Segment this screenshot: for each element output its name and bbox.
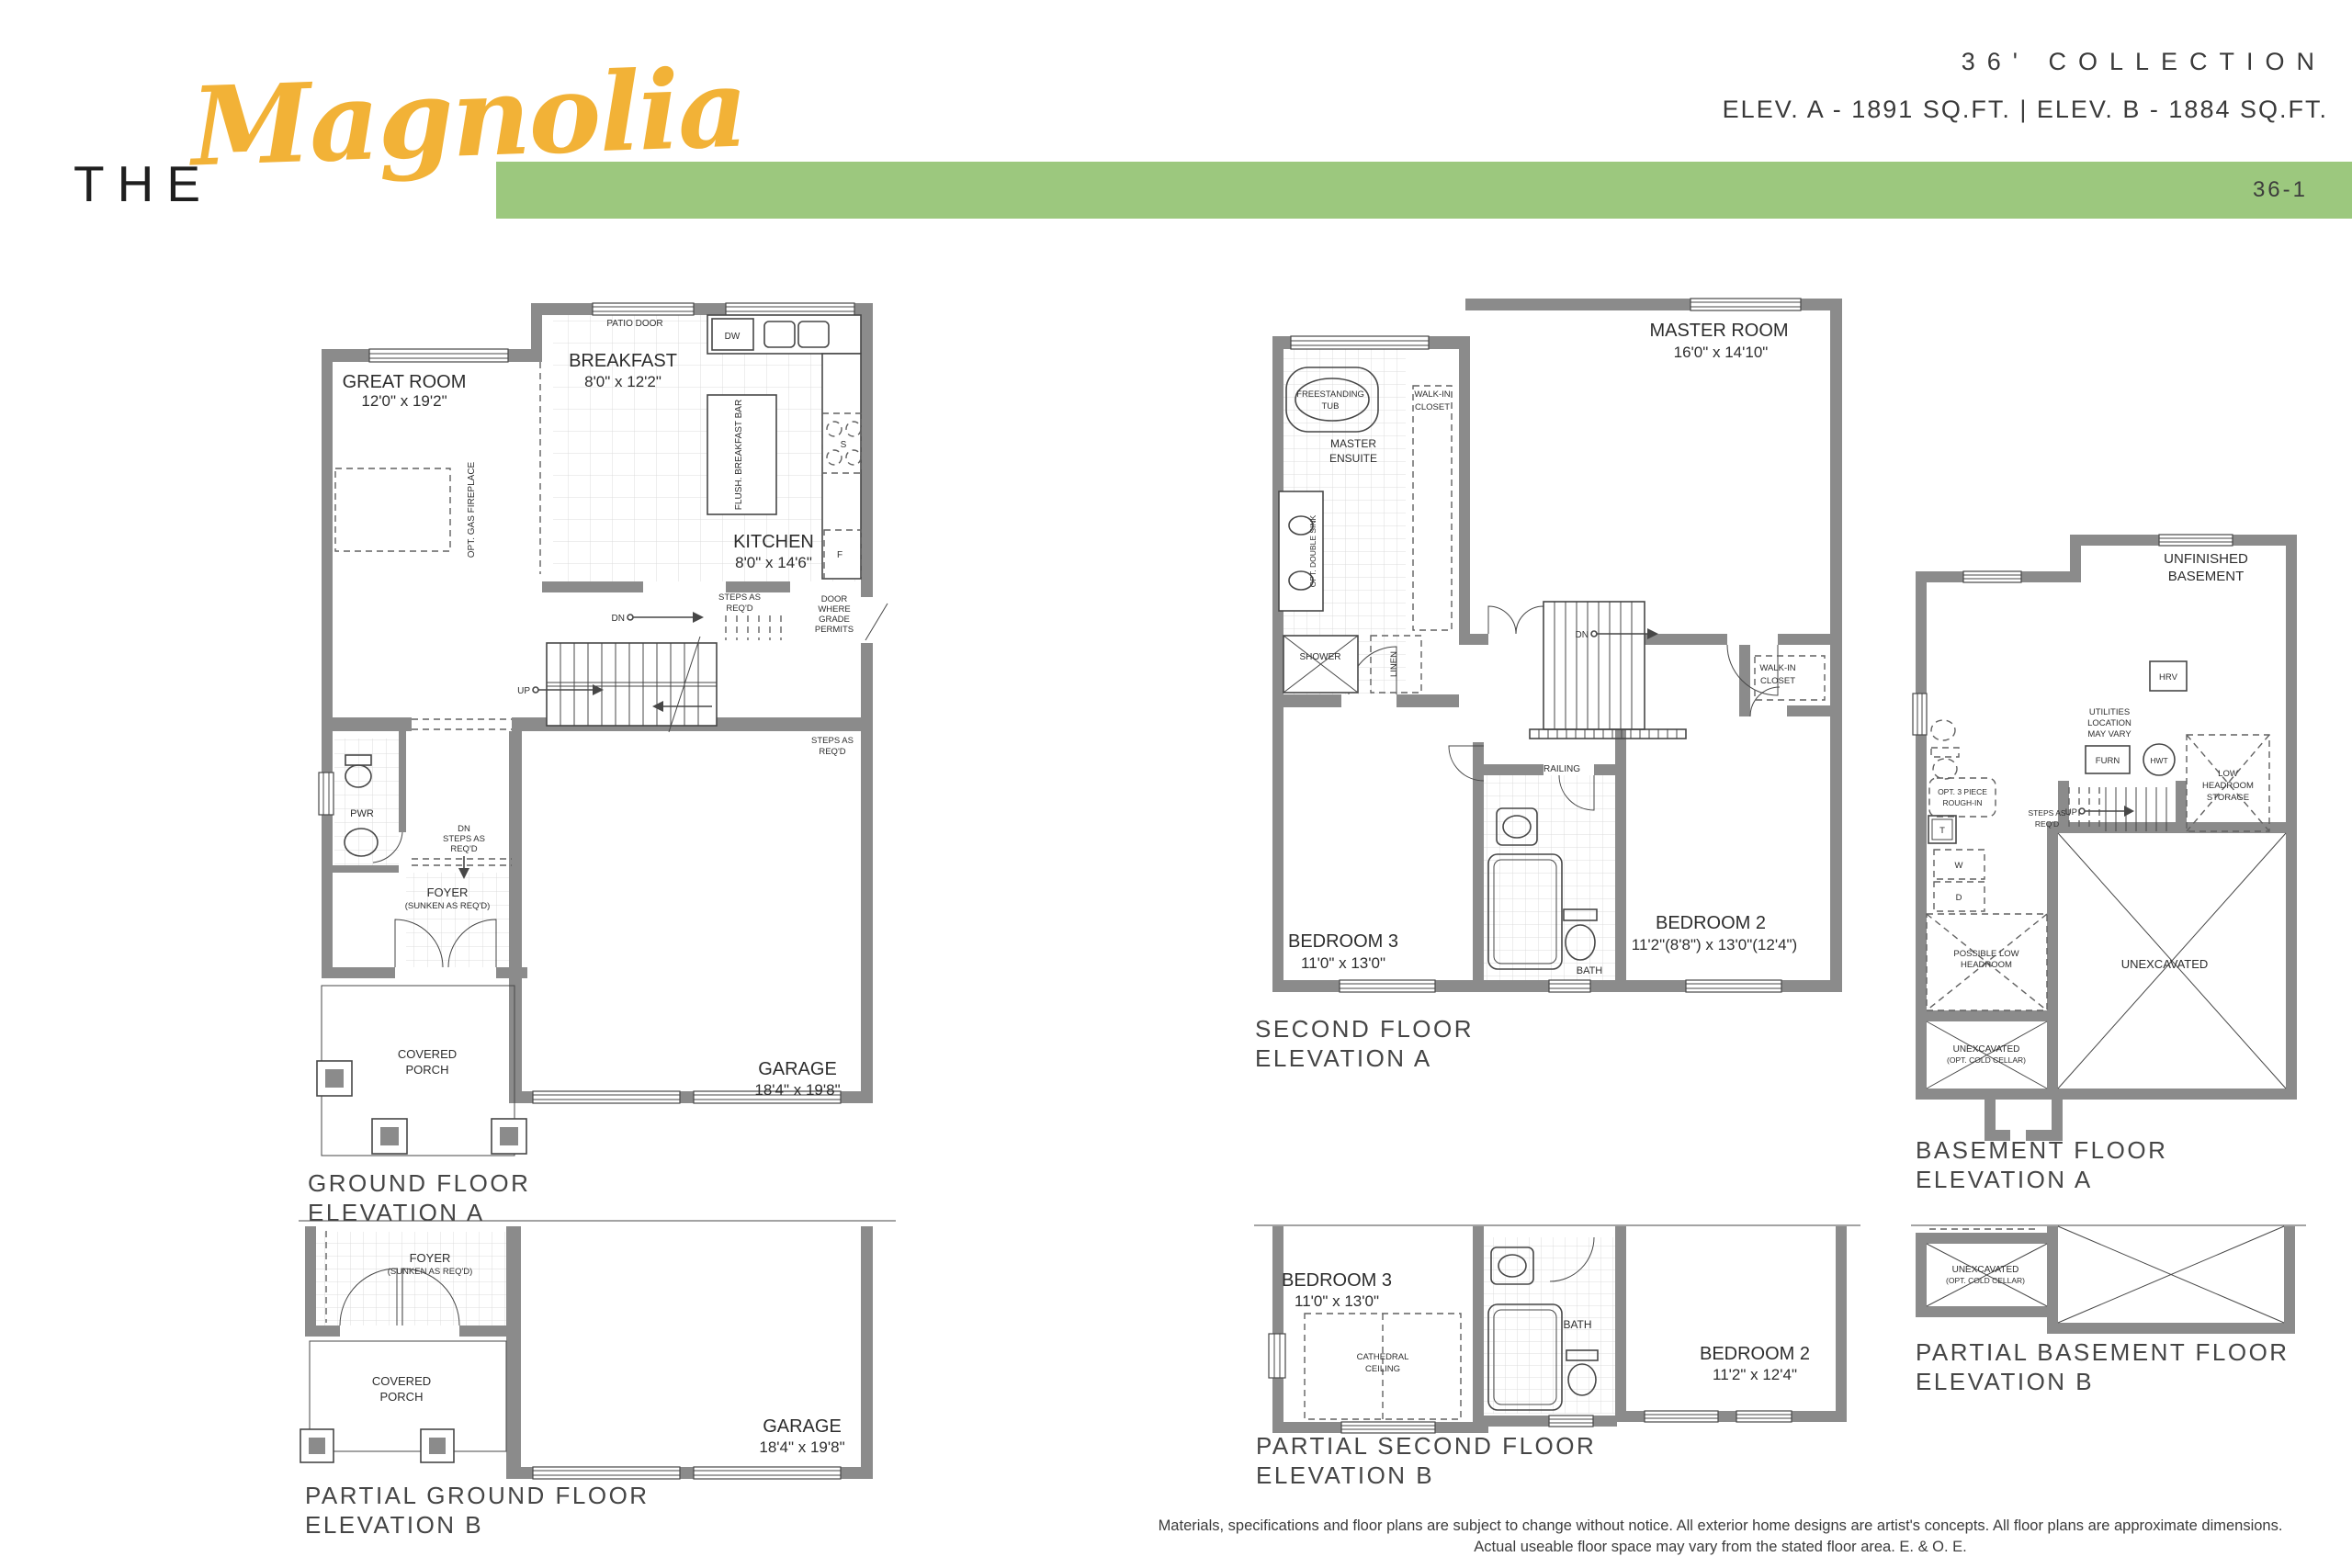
- walk-in-closet-label: CLOSET: [1415, 402, 1450, 412]
- dryer-label: D: [1956, 893, 1962, 903]
- plan-title-line: ELEVATION A: [1255, 1043, 1474, 1073]
- opt-double-sink-label: OPT. DOUBLE SINK: [1308, 514, 1317, 587]
- collection-label: 36' COLLECTION: [1962, 48, 2326, 76]
- plan-title-line: ELEVATION B: [1256, 1461, 1596, 1490]
- ground-a-title: GROUND FLOOR ELEVATION A: [308, 1168, 530, 1227]
- steps-as-reqd-label: REQ'D: [819, 747, 845, 757]
- possible-low-headroom-label: POSSIBLE LOW: [1953, 949, 2018, 959]
- ground-b-title: PARTIAL GROUND FLOOR ELEVATION B: [305, 1481, 650, 1540]
- cold-cellar-label: UNEXCAVATED: [1953, 1044, 2020, 1055]
- low-headroom-storage-label: LOW: [2218, 769, 2238, 779]
- freestanding-tub-label: FREESTANDING: [1296, 389, 1364, 400]
- foyer-sub-label: (SUNKEN AS REQ'D): [388, 1267, 473, 1277]
- utilities-note: UTILITIES: [2089, 707, 2130, 717]
- up-label: UP: [517, 686, 530, 696]
- cold-cellar-sub-label: (OPT. COLD CELLAR): [1947, 1055, 2026, 1065]
- laundry-tub-label: T: [1939, 826, 1945, 836]
- bedroom2-dims: 11'2" x 12'4": [1713, 1366, 1797, 1383]
- bedroom3-dims: 11'0" x 13'0": [1295, 1292, 1379, 1310]
- low-headroom-storage-label: STORAGE: [2207, 793, 2249, 803]
- floorplan-sheet: THE Magnolia 36' COLLECTION ELEV. A - 18…: [0, 0, 2352, 1568]
- hrv-label: HRV: [2159, 672, 2178, 682]
- disclaimer-line: Actual useable floor space may vary from…: [1102, 1537, 2338, 1558]
- opt-gas-fireplace-label: OPT. GAS FIREPLACE: [467, 461, 477, 558]
- steps-as-reqd-label: STEPS AS: [718, 592, 761, 603]
- green-accent-bar: 36-1: [496, 162, 2352, 219]
- bedroom3-label: BEDROOM 3: [1282, 1270, 1392, 1291]
- hot-water-tank-label: HWT: [2150, 756, 2167, 765]
- great-room-dims: 12'0" x 19'2": [361, 392, 447, 410]
- covered-porch-label: COVERED: [372, 1374, 431, 1388]
- fridge-label: F: [837, 550, 842, 560]
- bath-label: BATH: [1577, 965, 1603, 976]
- breakfast-bar-label: FLUSH. BREAKFAST BAR: [734, 400, 744, 510]
- utilities-note: MAY VARY: [2087, 729, 2131, 739]
- walk-in-closet-label: WALK-IN: [1414, 389, 1450, 400]
- bedroom3-dims: 11'0" x 13'0": [1301, 954, 1385, 972]
- kitchen-dims: 8'0" x 14'6": [735, 554, 812, 571]
- dn-steps-label: STEPS AS: [443, 834, 485, 844]
- shower-label: SHOWER: [1300, 652, 1341, 662]
- rough-in-label: ROUGH-IN: [1943, 798, 1983, 807]
- room-labels: UNFINISHED BASEMENT UTILITIES LOCATION M…: [1938, 551, 2254, 1065]
- freestanding-tub-label: TUB: [1322, 401, 1340, 412]
- stove-label: S: [841, 440, 847, 450]
- ground-floor-a-plan: GREAT ROOM 12'0" x 19'2" BREAKFAST 8'0" …: [303, 299, 891, 1208]
- covered-porch-label: PORCH: [380, 1390, 424, 1404]
- patio-door-label: PATIO DOOR: [606, 319, 662, 329]
- railing-label: RAILING: [1543, 764, 1580, 774]
- covered-porch-label: PORCH: [406, 1063, 449, 1077]
- elevation-square-footage: ELEV. A - 1891 SQ.FT. | ELEV. B - 1884 S…: [1723, 96, 2328, 124]
- plan-title-line: SECOND FLOOR: [1255, 1014, 1474, 1043]
- floor-tile-grid: [316, 1232, 506, 1325]
- dn-label: DN: [612, 614, 625, 624]
- sheet-code: 36-1: [2253, 162, 2308, 219]
- second-b-title: PARTIAL SECOND FLOOR ELEVATION B: [1256, 1431, 1596, 1490]
- second-a-title: SECOND FLOOR ELEVATION A: [1255, 1014, 1474, 1073]
- basement-a-title: BASEMENT FLOOR ELEVATION A: [1916, 1135, 2167, 1194]
- cold-cellar-sub-label: (OPT. COLD CELLAR): [1946, 1276, 2025, 1285]
- dn-label: DN: [1576, 630, 1589, 640]
- walk-in-closet-label: WALK-IN: [1759, 663, 1795, 673]
- door-grade-label: DOOR: [821, 594, 848, 604]
- plan-title-line: PARTIAL SECOND FLOOR: [1256, 1431, 1596, 1461]
- master-room-label: MASTER ROOM: [1649, 321, 1788, 341]
- steps-as-reqd-label: STEPS AS: [2028, 808, 2065, 818]
- foyer-sub-label: (SUNKEN AS REQ'D): [405, 901, 491, 911]
- plan-title-line: ELEVATION A: [308, 1198, 530, 1227]
- unfinished-basement-label: UNFINISHED: [2164, 551, 2248, 567]
- master-room-dims: 16'0" x 14'10": [1674, 344, 1769, 361]
- disclaimer: Materials, specifications and floor plan…: [1102, 1516, 2338, 1558]
- plan-title-line: ELEVATION A: [1916, 1165, 2167, 1194]
- master-ensuite-label: MASTER: [1330, 437, 1376, 450]
- unfinished-basement-label: BASEMENT: [2168, 569, 2245, 584]
- partial-ground-floor-b-plan: FOYER (SUNKEN AS REQ'D) COVERED PORCH GA…: [299, 1217, 896, 1520]
- second-floor-a-plan: MASTER ROOM 16'0" x 14'10" FREESTANDING …: [1268, 294, 1865, 1020]
- door-grade-label: GRADE: [819, 615, 850, 625]
- possible-low-headroom-label: HEADROOM: [1961, 960, 2012, 970]
- floor-tile-grid: [334, 315, 861, 967]
- plan-title-line: PARTIAL GROUND FLOOR: [305, 1481, 650, 1510]
- bedroom3-label: BEDROOM 3: [1288, 931, 1398, 952]
- dn-steps-label: REQ'D: [450, 844, 477, 854]
- covered-porch-label: COVERED: [398, 1047, 457, 1061]
- garage-label: GARAGE: [763, 1416, 842, 1437]
- dishwasher-label: DW: [725, 332, 741, 342]
- plan-title-line: PARTIAL BASEMENT FLOOR: [1916, 1337, 2290, 1367]
- steps-as-reqd-label: REQ'D: [726, 604, 752, 614]
- foyer-label: FOYER: [427, 886, 469, 899]
- great-room-label: GREAT ROOM: [343, 372, 467, 392]
- low-headroom-storage-label: HEADROOM: [2202, 781, 2254, 791]
- door-grade-label: PERMITS: [815, 625, 854, 635]
- door-grade-label: WHERE: [818, 604, 850, 615]
- bedroom2-label: BEDROOM 2: [1656, 913, 1766, 933]
- rough-in-label: OPT. 3 PIECE: [1938, 787, 1987, 796]
- garage-dims: 18'4" x 19'8": [754, 1081, 840, 1099]
- walk-in-closet-label: CLOSET: [1760, 676, 1795, 686]
- basement-b-title: PARTIAL BASEMENT FLOOR ELEVATION B: [1916, 1337, 2290, 1396]
- garage-label: GARAGE: [758, 1059, 837, 1079]
- cathedral-ceiling-label: CATHEDRAL: [1357, 1352, 1409, 1362]
- cathedral-ceiling-label: CEILING: [1365, 1364, 1400, 1374]
- plan-title-line: ELEVATION B: [305, 1510, 650, 1540]
- furnace-label: FURN: [2096, 756, 2120, 766]
- up-label: UP: [2065, 807, 2077, 818]
- garage-dims: 18'4" x 19'8": [759, 1438, 844, 1456]
- dn-steps-label: DN: [458, 824, 470, 834]
- linen-label: LINEN: [1389, 651, 1399, 677]
- master-ensuite-label: ENSUITE: [1329, 452, 1377, 465]
- room-labels: UNEXCAVATED (OPT. COLD CELLAR): [1946, 1265, 2025, 1285]
- kitchen-label: KITCHEN: [733, 532, 814, 552]
- breakfast-dims: 8'0" x 12'2": [584, 373, 661, 390]
- plan-title-line: GROUND FLOOR: [308, 1168, 530, 1198]
- utilities-note: LOCATION: [2087, 718, 2131, 728]
- foyer-label: FOYER: [410, 1251, 451, 1265]
- bath-label: BATH: [1563, 1318, 1591, 1331]
- bedroom2-dims: 11'2"(8'8") x 13'0"(12'4"): [1632, 936, 1797, 953]
- unexcavated-label: UNEXCAVATED: [2121, 957, 2209, 971]
- steps-as-reqd-label: STEPS AS: [811, 736, 854, 746]
- breakfast-label: BREAKFAST: [569, 351, 677, 371]
- basement-floor-a-plan: UNFINISHED BASEMENT UTILITIES LOCATION M…: [1911, 528, 2306, 1171]
- powder-room-label: PWR: [350, 808, 374, 819]
- washer-label: W: [1955, 861, 1963, 871]
- bedroom2-label: BEDROOM 2: [1700, 1344, 1810, 1364]
- plan-title-line: ELEVATION B: [1916, 1367, 2290, 1396]
- cold-cellar-label: UNEXCAVATED: [1952, 1265, 2019, 1275]
- floor-tile-grid: [1484, 1237, 1615, 1414]
- disclaimer-line: Materials, specifications and floor plan…: [1102, 1516, 2338, 1537]
- steps-as-reqd-label: REQ'D: [2035, 819, 2059, 829]
- plan-title-line: BASEMENT FLOOR: [1916, 1135, 2167, 1165]
